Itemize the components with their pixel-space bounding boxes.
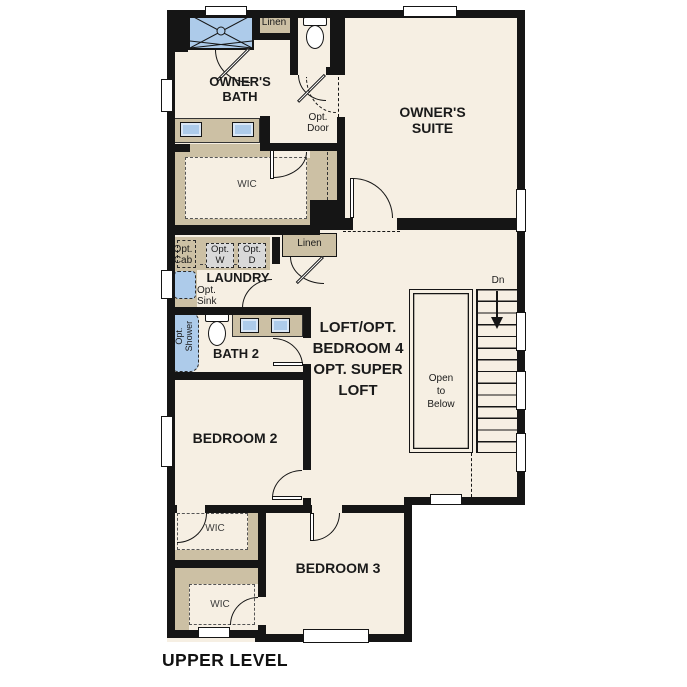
- wall: [167, 505, 177, 513]
- wall: [337, 218, 353, 230]
- room-label-bath2: BATH 2: [203, 347, 269, 362]
- wall: [330, 10, 345, 75]
- window: [303, 629, 369, 643]
- stairs-dashed-edge: [471, 453, 472, 497]
- wall: [342, 505, 412, 513]
- room-label-wic1: WIC: [193, 523, 237, 534]
- wall: [404, 497, 525, 505]
- window: [161, 270, 173, 299]
- chase-dashed-line: [327, 152, 328, 200]
- stairs-down-label: Dn: [486, 275, 510, 286]
- wall: [326, 67, 345, 75]
- door-leaf: [310, 513, 314, 541]
- open-to-below-box: [409, 289, 473, 453]
- wic1-bottom-band: [167, 550, 265, 560]
- window: [161, 416, 173, 467]
- room-label-owners-suite: OWNER'S SUITE: [385, 105, 480, 136]
- opt-sink-label: Opt. Sink: [197, 285, 229, 307]
- opt-sink-fixture: [174, 271, 196, 299]
- plan-title: UPPER LEVEL: [162, 651, 382, 671]
- wc-toilet-bowl: [306, 25, 324, 49]
- room-label-owners-wic: WIC: [222, 179, 272, 190]
- window: [516, 433, 526, 472]
- room-label-loft: LOFT/OPT. BEDROOM 4 OPT. SUPER LOFT: [302, 317, 414, 401]
- wall: [167, 372, 311, 380]
- window: [516, 189, 526, 232]
- window: [430, 494, 462, 505]
- wall: [258, 513, 266, 597]
- window: [516, 312, 526, 351]
- owners-sink-right: [232, 122, 254, 137]
- owners-suite-dashed-opening: [343, 231, 400, 232]
- room-label-bedroom3: BEDROOM 3: [282, 561, 394, 577]
- linen-hall-label: Linen: [282, 238, 337, 249]
- door-leaf: [272, 496, 302, 500]
- window: [198, 627, 230, 638]
- linen-bath-label: Linen: [256, 17, 292, 28]
- room-label-bedroom2: BEDROOM 2: [180, 431, 290, 447]
- wall: [167, 560, 265, 568]
- bath2-sink-right: [271, 318, 290, 333]
- room-label-owners-bath: OWNER'S BATH: [180, 75, 300, 104]
- wall: [404, 505, 412, 642]
- floor-plan: Linen OWNER'S BATH Opt. Door WIC OWNER'S…: [0, 0, 687, 687]
- door-leaf: [350, 178, 354, 218]
- wall: [252, 33, 292, 40]
- opt-shower-label: Opt. Shower: [174, 307, 194, 365]
- door-leaf: [273, 362, 303, 366]
- window: [205, 6, 247, 16]
- room-label-laundry: LAUNDRY: [202, 271, 274, 286]
- wall: [272, 237, 280, 264]
- opt-cab-label: Opt. Cab: [166, 244, 200, 266]
- door-leaf: [270, 150, 274, 179]
- window: [516, 371, 526, 410]
- opt-door-dashed-jamb: [338, 77, 339, 117]
- wall: [255, 505, 312, 513]
- open-to-below-label: Open to Below: [409, 372, 473, 411]
- room-label-wic2: WIC: [198, 599, 242, 610]
- window: [403, 6, 457, 17]
- wall: [517, 10, 525, 505]
- down-arrow-head: [491, 317, 503, 329]
- opt-dryer-label: Opt. D: [238, 245, 266, 266]
- wall: [167, 225, 320, 235]
- bath2-toilet-bowl: [208, 321, 226, 346]
- bath2-sink-left: [240, 318, 259, 333]
- opt-washer-label: Opt. W: [206, 245, 234, 266]
- wall: [258, 625, 266, 638]
- opt-door-label: Opt. Door: [298, 112, 338, 134]
- wall: [167, 144, 190, 152]
- wall: [397, 218, 525, 230]
- down-arrow-line: [496, 291, 498, 319]
- owners-sink-left: [180, 122, 202, 137]
- wic2-left-strip: [175, 568, 189, 630]
- owners-shower: [188, 13, 254, 50]
- window: [161, 79, 173, 112]
- wall: [290, 67, 298, 75]
- wall: [167, 10, 188, 52]
